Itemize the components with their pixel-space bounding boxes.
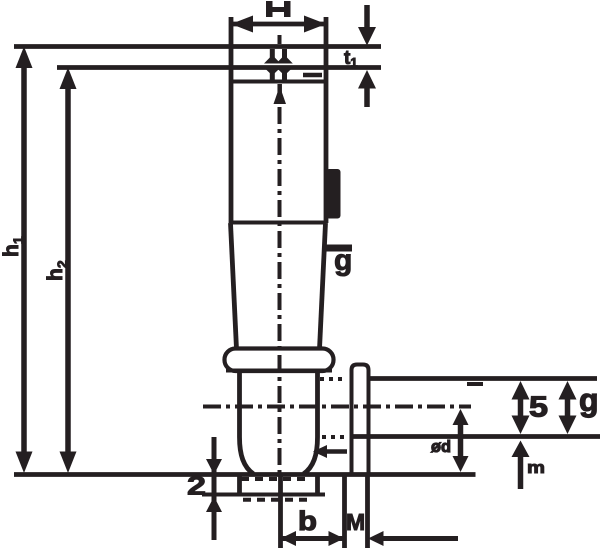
svg-text:M: M	[346, 509, 365, 535]
svg-text:g: g	[334, 244, 352, 277]
svg-text:2: 2	[187, 471, 206, 501]
svg-text:t1: t1	[344, 48, 358, 70]
svg-text:g: g	[579, 382, 599, 418]
svg-text:h1: h1	[0, 236, 26, 257]
svg-text:5: 5	[529, 392, 548, 424]
svg-text:ød: ød	[431, 437, 451, 456]
svg-text:m: m	[527, 458, 545, 477]
svg-text:h2: h2	[44, 260, 70, 281]
svg-text:b: b	[298, 506, 317, 536]
